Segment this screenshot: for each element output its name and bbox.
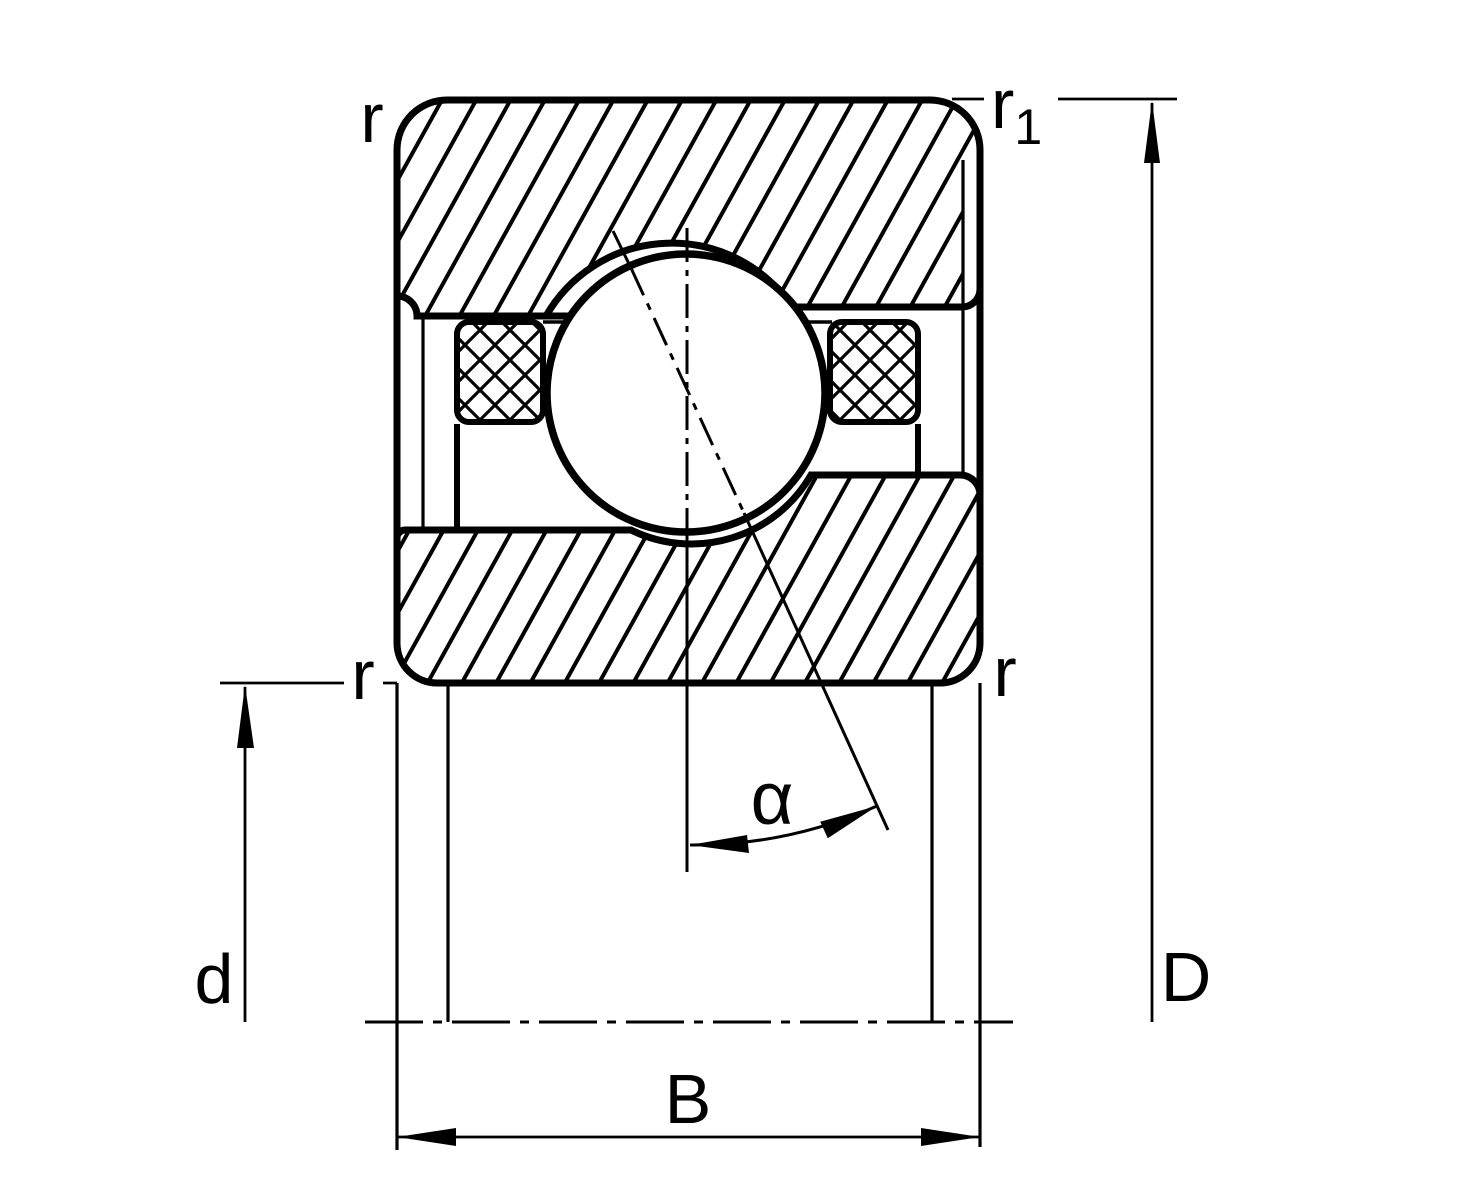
dimension-D	[952, 99, 1177, 1022]
bearing-drawing: r r1 r r d D B α	[0, 0, 1466, 1200]
dimension-d	[220, 683, 397, 1022]
label-alpha: α	[751, 757, 794, 840]
D-arrowhead	[1144, 101, 1160, 163]
label-r1-top-right: r1	[991, 65, 1042, 155]
cage-block-right	[830, 322, 918, 422]
label-d: d	[195, 940, 234, 1018]
d-arrowhead	[237, 685, 254, 748]
bearing-drawing-canvas: r r1 r r d D B α	[0, 0, 1466, 1200]
label-r1-subscript: 1	[1014, 99, 1042, 155]
B-arrowhead-left	[397, 1128, 456, 1146]
cage-block-left	[457, 322, 543, 422]
label-r-bottom-left: r	[351, 636, 374, 714]
label-r-top-left: r	[360, 79, 383, 157]
B-arrowhead-right	[921, 1128, 980, 1146]
angle-arrow-right	[820, 806, 877, 838]
angle-arrow-left	[690, 835, 749, 853]
label-r-bottom-right: r	[993, 633, 1016, 711]
label-B: B	[665, 1060, 712, 1138]
label-D: D	[1161, 938, 1212, 1016]
